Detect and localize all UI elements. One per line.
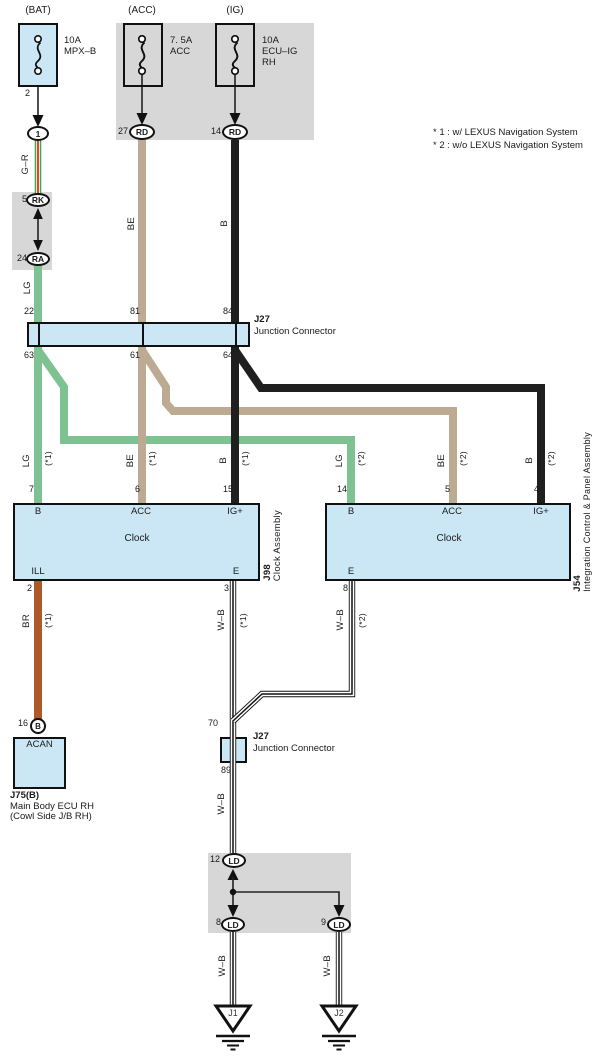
wire-variant-be2: (*2)	[458, 451, 468, 466]
pin-64: 64	[223, 350, 233, 361]
junction-bottom-name: Junction Connector	[253, 744, 335, 755]
fuse-acc-box	[123, 23, 163, 87]
ground-block-link	[233, 877, 339, 906]
junction-top-id: J27	[254, 315, 270, 326]
fuse-bat-rating: 10A	[64, 36, 81, 47]
pin-70: 70	[208, 718, 218, 729]
clock-right-pin-b: B	[339, 507, 363, 518]
wire-variant-wb2: (*2)	[357, 613, 367, 628]
pin-16: 16	[18, 718, 28, 729]
clock-right-pin-ig: IG+	[529, 507, 553, 518]
pin-81: 81	[130, 306, 140, 317]
fuse-bat-title: (BAT)	[14, 6, 62, 17]
acan-label: ACAN	[13, 740, 66, 751]
wire-label-b1: B	[218, 457, 229, 464]
clock-left-title: Clock	[87, 534, 187, 545]
pin-bat-2: 2	[25, 88, 30, 99]
clock-left-pin-ill: ILL	[26, 567, 50, 578]
arrow-down-icon	[33, 240, 43, 251]
terminal-ld-8: LD	[221, 917, 245, 932]
note-2: * 2 : w/o LEXUS Navigation System	[433, 141, 583, 152]
terminal-rk: RK	[26, 193, 50, 207]
wire-label-b-top: B	[219, 220, 230, 227]
wire-variant-wb1: (*1)	[238, 613, 248, 628]
pin-12: 12	[210, 854, 220, 865]
pin-7: 7	[29, 484, 34, 495]
pin-e-8: 8	[343, 583, 348, 594]
pin-89: 89	[221, 765, 231, 776]
fuse-acc-title: (ACC)	[118, 6, 166, 17]
fuse-bat-name: MPX–B	[64, 47, 96, 58]
wire-label-be-top: BE	[126, 217, 137, 230]
wire-label-lg2: LG	[334, 454, 345, 467]
wire-label-wb-gnd-left: W–B	[217, 955, 228, 977]
clock-right-pin-acc: ACC	[440, 507, 464, 518]
wire-label-lg-top: LG	[22, 281, 33, 294]
pin-e-3: 3	[224, 583, 229, 594]
wire-label-wb1: W–B	[216, 609, 227, 631]
terminal-ra: RA	[26, 252, 50, 266]
wire-label-wb2: W–B	[335, 609, 346, 631]
fuse-ig-rating: 10A	[262, 36, 279, 47]
clock-left-pin-acc: ACC	[129, 507, 153, 518]
integration-panel-name: Integration Control & Panel Assembly	[582, 432, 592, 592]
wire-label-br: BR	[21, 614, 32, 628]
ecu-name-2: (Cowl Side J/B RH)	[10, 812, 92, 823]
wire-label-g-r: G–R	[20, 154, 31, 174]
terminal-ld-9: LD	[327, 917, 351, 932]
junction-bottom-id: J27	[253, 732, 269, 743]
fuse-bat-box	[18, 23, 58, 87]
fuse-ig-box	[215, 23, 255, 87]
wire-label-lg1: LG	[21, 454, 32, 467]
wire-b	[235, 140, 541, 503]
pin-4b: 4	[534, 484, 539, 495]
pin-14b: 14	[337, 484, 347, 495]
ground-j2-label: J2	[327, 1008, 351, 1019]
arrow-down-icon	[228, 905, 239, 917]
wire-variant-lg1: (*1)	[43, 451, 53, 466]
terminal-b-circle: B	[30, 718, 46, 734]
wire-label-b2: B	[524, 457, 535, 464]
wire-variant-lg2: (*2)	[356, 451, 366, 466]
ecu-id: J75(B)	[10, 791, 39, 802]
pin-acc-27: 27	[118, 126, 128, 137]
clock-left-pin-b: B	[26, 507, 50, 518]
wire-variant-b1: (*1)	[240, 451, 250, 466]
pin-9-ld: 9	[321, 917, 326, 928]
terminal-rd-ig: RD	[222, 124, 248, 140]
junction-dot	[230, 889, 236, 895]
clock-right-title: Clock	[399, 534, 499, 545]
pin-63: 63	[24, 350, 34, 361]
wiring-diagram: (BAT) (ACC) (IG) 10A MPX–B 7. 5A ACC 10A…	[0, 0, 607, 1064]
clock-left-pin-ig: IG+	[223, 507, 247, 518]
wire-w-b-2	[233, 581, 352, 721]
arrow-up-icon	[33, 208, 43, 219]
clock-left-pin-e: E	[224, 567, 248, 578]
pin-5b: 5	[445, 484, 450, 495]
fuse-acc-rating: 7. 5A	[170, 36, 192, 47]
fuse-ig-title: (IG)	[211, 6, 259, 17]
ground-j1-label: J1	[221, 1008, 245, 1019]
pin-84: 84	[223, 306, 233, 317]
fuse-acc-name: ACC	[170, 47, 190, 58]
terminal-1: 1	[27, 126, 49, 141]
wire-variant-be1: (*1)	[147, 451, 157, 466]
wire-variant-b2: (*2)	[546, 451, 556, 466]
fuse-ig-name2: RH	[262, 58, 276, 69]
junction-connector-top-box	[27, 322, 250, 347]
clock-assembly-name: Clock Assembly	[272, 510, 283, 581]
fuse-ig-name: ECU–IG	[262, 47, 297, 58]
pin-6: 6	[135, 484, 140, 495]
terminal-ld-12: LD	[222, 853, 246, 868]
wire-label-wb-gnd-right: W–B	[322, 955, 333, 977]
pin-22: 22	[24, 306, 34, 317]
wire-variant-br: (*1)	[43, 613, 53, 628]
pin-15: 15	[223, 484, 233, 495]
clock-right-pin-e: E	[339, 567, 363, 578]
junction-top-name: Junction Connector	[254, 327, 336, 338]
pin-ig-14: 14	[211, 126, 221, 137]
note-1: * 1 : w/ LEXUS Navigation System	[433, 128, 578, 139]
pin-ill-2: 2	[27, 583, 32, 594]
pin-61: 61	[130, 350, 140, 361]
terminal-rd-acc: RD	[129, 124, 155, 140]
wire-label-be1: BE	[125, 454, 136, 467]
arrow-down-icon	[334, 905, 345, 917]
wire-label-be2: BE	[436, 454, 447, 467]
wire-label-wb-mid: W–B	[216, 793, 227, 815]
